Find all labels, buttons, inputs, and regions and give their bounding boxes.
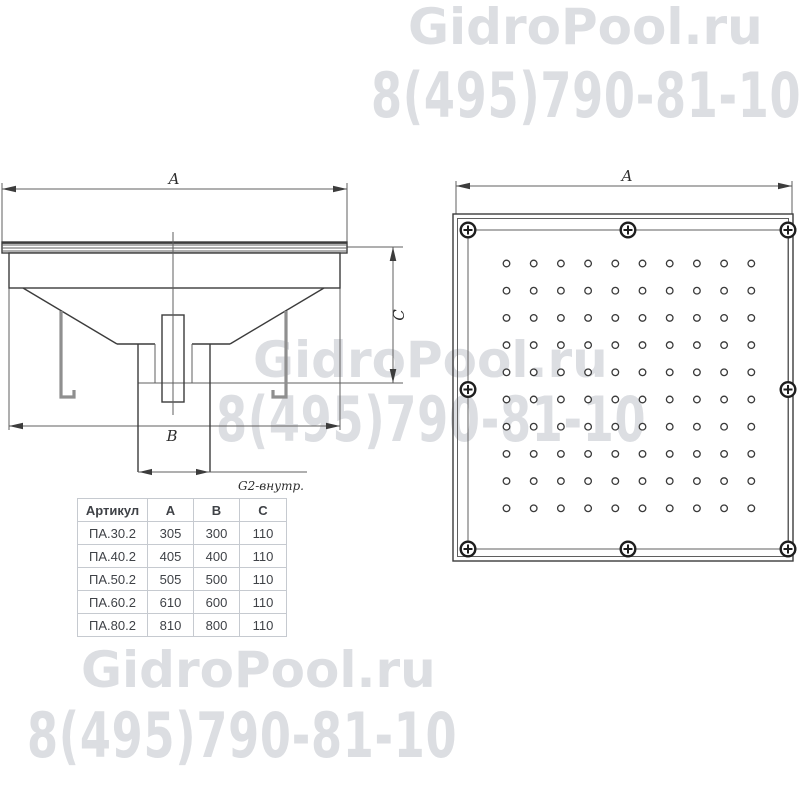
perforation-hole	[530, 423, 537, 430]
perforation-hole	[666, 369, 673, 376]
perforation-hole	[666, 451, 673, 458]
perforation-hole	[639, 478, 646, 485]
perforation-hole	[748, 287, 755, 294]
perforation-hole	[585, 451, 592, 458]
perforation-hole	[558, 287, 565, 294]
perforation-hole	[585, 505, 592, 512]
col-header-a: A	[148, 499, 194, 522]
dim-label-a-top: A	[620, 167, 633, 185]
body-section	[9, 253, 340, 288]
table-cell: 110	[240, 591, 287, 614]
perforation-hole	[666, 505, 673, 512]
perforation-hole	[503, 478, 510, 485]
perforation-hole	[503, 287, 510, 294]
perforation-hole	[748, 342, 755, 349]
screw	[621, 542, 636, 557]
table-cell: 110	[240, 545, 287, 568]
perforation-hole	[585, 342, 592, 349]
table-cell: 610	[148, 591, 194, 614]
perforation-hole	[612, 315, 619, 322]
screw	[781, 223, 796, 238]
perforation-hole	[503, 505, 510, 512]
perforation-hole	[558, 260, 565, 267]
perforation-hole	[639, 315, 646, 322]
perforation-hole	[585, 369, 592, 376]
dimensions-table: Артикул A B C ПА.30.2305300110ПА.40.2405…	[77, 498, 287, 637]
dim-label-b: B	[165, 427, 177, 445]
perforation-hole	[666, 478, 673, 485]
perforation-hole	[530, 260, 537, 267]
perforation-hole	[530, 396, 537, 403]
perforation-hole	[558, 478, 565, 485]
perforation-hole	[694, 260, 701, 267]
perforation-hole	[612, 451, 619, 458]
perforation-hole	[503, 423, 510, 430]
perforation-hole	[748, 315, 755, 322]
table-row: ПА.40.2405400110	[78, 545, 287, 568]
perforation-hole	[558, 369, 565, 376]
perforation-hole	[503, 315, 510, 322]
perforation-hole	[612, 287, 619, 294]
perforation-hole	[721, 505, 728, 512]
perforation-hole	[666, 342, 673, 349]
table-cell: 110	[240, 568, 287, 591]
table-cell: 810	[148, 614, 194, 637]
perforation-hole	[694, 396, 701, 403]
table-cell: 300	[194, 522, 240, 545]
table-cell: ПА.80.2	[78, 614, 148, 637]
perforation-hole	[612, 396, 619, 403]
perforation-hole	[694, 478, 701, 485]
thread-socket	[138, 344, 210, 472]
perforation-hole	[639, 423, 646, 430]
dim-label-c: C	[390, 309, 408, 321]
perforation-hole	[612, 369, 619, 376]
perforation-hole	[612, 505, 619, 512]
plate-inner-frame	[468, 230, 788, 549]
perforation-hole	[694, 451, 701, 458]
table-cell: 110	[240, 522, 287, 545]
perforation-hole	[666, 287, 673, 294]
perforation-hole	[748, 505, 755, 512]
table-cell: ПА.50.2	[78, 568, 148, 591]
perforation-hole	[530, 369, 537, 376]
perforation-hole	[503, 451, 510, 458]
right-hook	[273, 311, 286, 397]
perforation-hole	[666, 260, 673, 267]
perforation-hole	[639, 369, 646, 376]
table-cell: 405	[148, 545, 194, 568]
col-header-c: C	[240, 499, 287, 522]
perforation-hole	[639, 342, 646, 349]
perforation-hole	[748, 451, 755, 458]
perforation-hole	[585, 396, 592, 403]
thread-label: G2-внутр.	[238, 479, 304, 493]
col-header-article: Артикул	[78, 499, 148, 522]
perforation-hole	[666, 396, 673, 403]
perforation-hole	[530, 478, 537, 485]
perforation-hole	[585, 423, 592, 430]
perforation-hole	[612, 260, 619, 267]
perforation-hole	[612, 423, 619, 430]
table-cell: 400	[194, 545, 240, 568]
screw	[781, 382, 796, 397]
perforation-hole	[530, 505, 537, 512]
left-hook	[61, 311, 74, 397]
perforation-hole	[694, 369, 701, 376]
table-cell: 110	[240, 614, 287, 637]
table-cell: ПА.40.2	[78, 545, 148, 568]
perforation-hole	[748, 423, 755, 430]
perforation-hole	[558, 396, 565, 403]
perforation-hole	[721, 287, 728, 294]
side-view-drawing: A B C	[2, 170, 408, 493]
perforation-hole	[585, 478, 592, 485]
table-cell: ПА.30.2	[78, 522, 148, 545]
perforation-hole	[639, 451, 646, 458]
perforation-hole	[748, 260, 755, 267]
perforation-hole	[639, 396, 646, 403]
perforation-hole	[585, 315, 592, 322]
table-cell: 500	[194, 568, 240, 591]
perforation-hole	[721, 260, 728, 267]
perforation-hole	[748, 478, 755, 485]
perforation-hole	[558, 451, 565, 458]
table-cell: 505	[148, 568, 194, 591]
table-cell: 600	[194, 591, 240, 614]
screw	[781, 542, 796, 557]
perforation-hole	[612, 478, 619, 485]
screw	[461, 542, 476, 557]
perforation-hole	[639, 260, 646, 267]
table-row: ПА.30.2305300110	[78, 522, 287, 545]
perforation-hole	[721, 396, 728, 403]
perforation-holes	[503, 260, 754, 511]
perforation-hole	[666, 423, 673, 430]
perforation-hole	[721, 451, 728, 458]
screw	[621, 223, 636, 238]
perforation-hole	[639, 505, 646, 512]
technical-drawing-page: GidroPool.ru 8(495)790-81-10 GidroPool.r…	[0, 0, 800, 800]
screw	[461, 223, 476, 238]
table-row: ПА.80.2810800110	[78, 614, 287, 637]
perforation-hole	[612, 342, 619, 349]
perforation-hole	[558, 342, 565, 349]
perforation-hole	[721, 423, 728, 430]
drawings-svg: A B C	[0, 0, 800, 800]
perforation-hole	[694, 287, 701, 294]
perforation-hole	[585, 260, 592, 267]
perforation-hole	[694, 505, 701, 512]
perforation-hole	[585, 287, 592, 294]
screws	[461, 223, 796, 557]
perforation-hole	[694, 342, 701, 349]
perforation-hole	[721, 342, 728, 349]
perforation-hole	[503, 342, 510, 349]
perforation-hole	[558, 423, 565, 430]
perforation-hole	[558, 315, 565, 322]
top-view-drawing: A	[453, 167, 795, 561]
table-cell: ПА.60.2	[78, 591, 148, 614]
perforation-hole	[503, 260, 510, 267]
table-cell: 800	[194, 614, 240, 637]
table-cell: 305	[148, 522, 194, 545]
perforation-hole	[503, 369, 510, 376]
perforation-hole	[721, 478, 728, 485]
perforation-hole	[721, 315, 728, 322]
perforation-hole	[748, 369, 755, 376]
dim-label-a-side: A	[167, 170, 180, 188]
perforation-hole	[748, 396, 755, 403]
perforation-hole	[530, 315, 537, 322]
perforation-hole	[694, 315, 701, 322]
screw	[461, 382, 476, 397]
perforation-hole	[530, 451, 537, 458]
table-header-row: Артикул A B C	[78, 499, 287, 522]
perforation-hole	[666, 315, 673, 322]
perforation-hole	[721, 369, 728, 376]
perforation-hole	[558, 505, 565, 512]
table-row: ПА.60.2610600110	[78, 591, 287, 614]
col-header-b: B	[194, 499, 240, 522]
perforation-hole	[694, 423, 701, 430]
perforation-hole	[639, 287, 646, 294]
perforation-hole	[530, 342, 537, 349]
perforation-hole	[530, 287, 537, 294]
table-row: ПА.50.2505500110	[78, 568, 287, 591]
perforation-hole	[503, 396, 510, 403]
